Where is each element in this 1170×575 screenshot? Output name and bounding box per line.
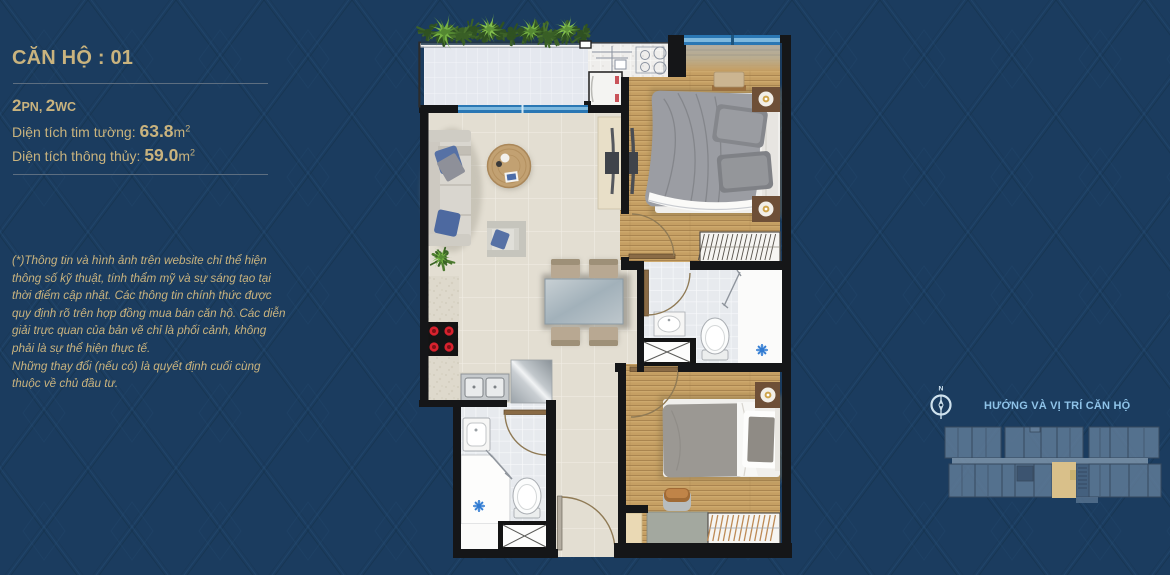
svg-text:N: N (939, 386, 944, 393)
